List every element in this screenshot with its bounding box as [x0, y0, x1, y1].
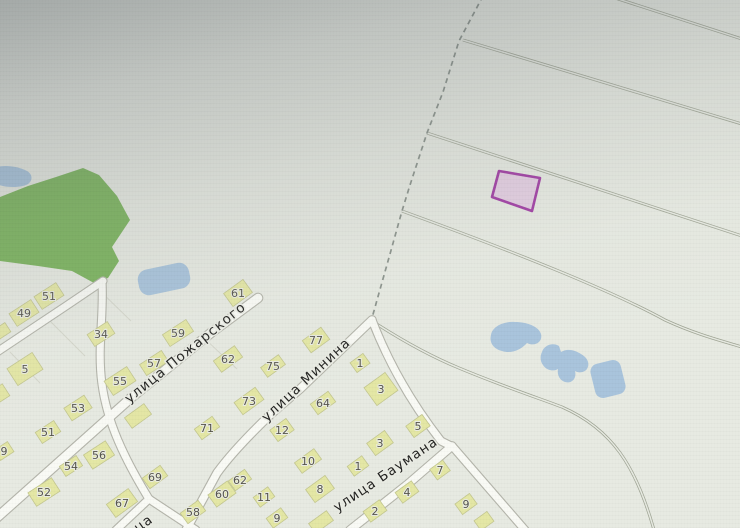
house-number-label: 59: [171, 327, 185, 340]
house-number-label: 64: [316, 397, 330, 410]
house-number-label: 1: [357, 357, 364, 370]
house-number-label: 53: [71, 402, 85, 415]
house-number-label: 11: [257, 491, 271, 504]
house-number-label: 56: [92, 449, 106, 462]
house-number-label: 1: [355, 460, 362, 473]
house-number-label: 52: [37, 486, 51, 499]
house-number-label: 77: [309, 334, 323, 347]
map-canvas[interactable]: 5149534555759616275737753519565452716967…: [0, 0, 740, 528]
house-number-label: 58: [186, 506, 200, 519]
house-number-label: 8: [317, 483, 324, 496]
house-number-label: 3: [378, 383, 385, 396]
house-number-label: 9: [1, 445, 8, 458]
house-number-label: 61: [231, 287, 245, 300]
house-number-label: 2: [372, 505, 379, 518]
house-number-label: 12: [275, 424, 289, 437]
house-number-label: 3: [377, 437, 384, 450]
house-number-label: 5: [22, 363, 29, 376]
house-number-label: 7: [437, 464, 444, 477]
house-number-label: 51: [42, 290, 56, 303]
house-number-label: 34: [94, 328, 108, 341]
house-number-label: 73: [242, 395, 256, 408]
house-number-label: 49: [17, 307, 31, 320]
house-number-label: 67: [115, 497, 129, 510]
house-number-label: 51: [41, 426, 55, 439]
house-number-label: 71: [200, 422, 214, 435]
house-number-label: 4: [404, 486, 411, 499]
house-number-label: 60: [215, 488, 229, 501]
house-number-label: 62: [233, 474, 247, 487]
screen-photo: 5149534555759616275737753519565452716967…: [0, 0, 740, 528]
house-number-label: 69: [148, 471, 162, 484]
house-number-label: 9: [274, 512, 281, 525]
house-number-label: 10: [301, 455, 315, 468]
house-number-label: 55: [113, 375, 127, 388]
house-number-label: 5: [415, 420, 422, 433]
house-number-label: 9: [463, 498, 470, 511]
house-number-label: 54: [64, 460, 78, 473]
house-number-label: 62: [221, 353, 235, 366]
house-number-label: 75: [266, 360, 280, 373]
